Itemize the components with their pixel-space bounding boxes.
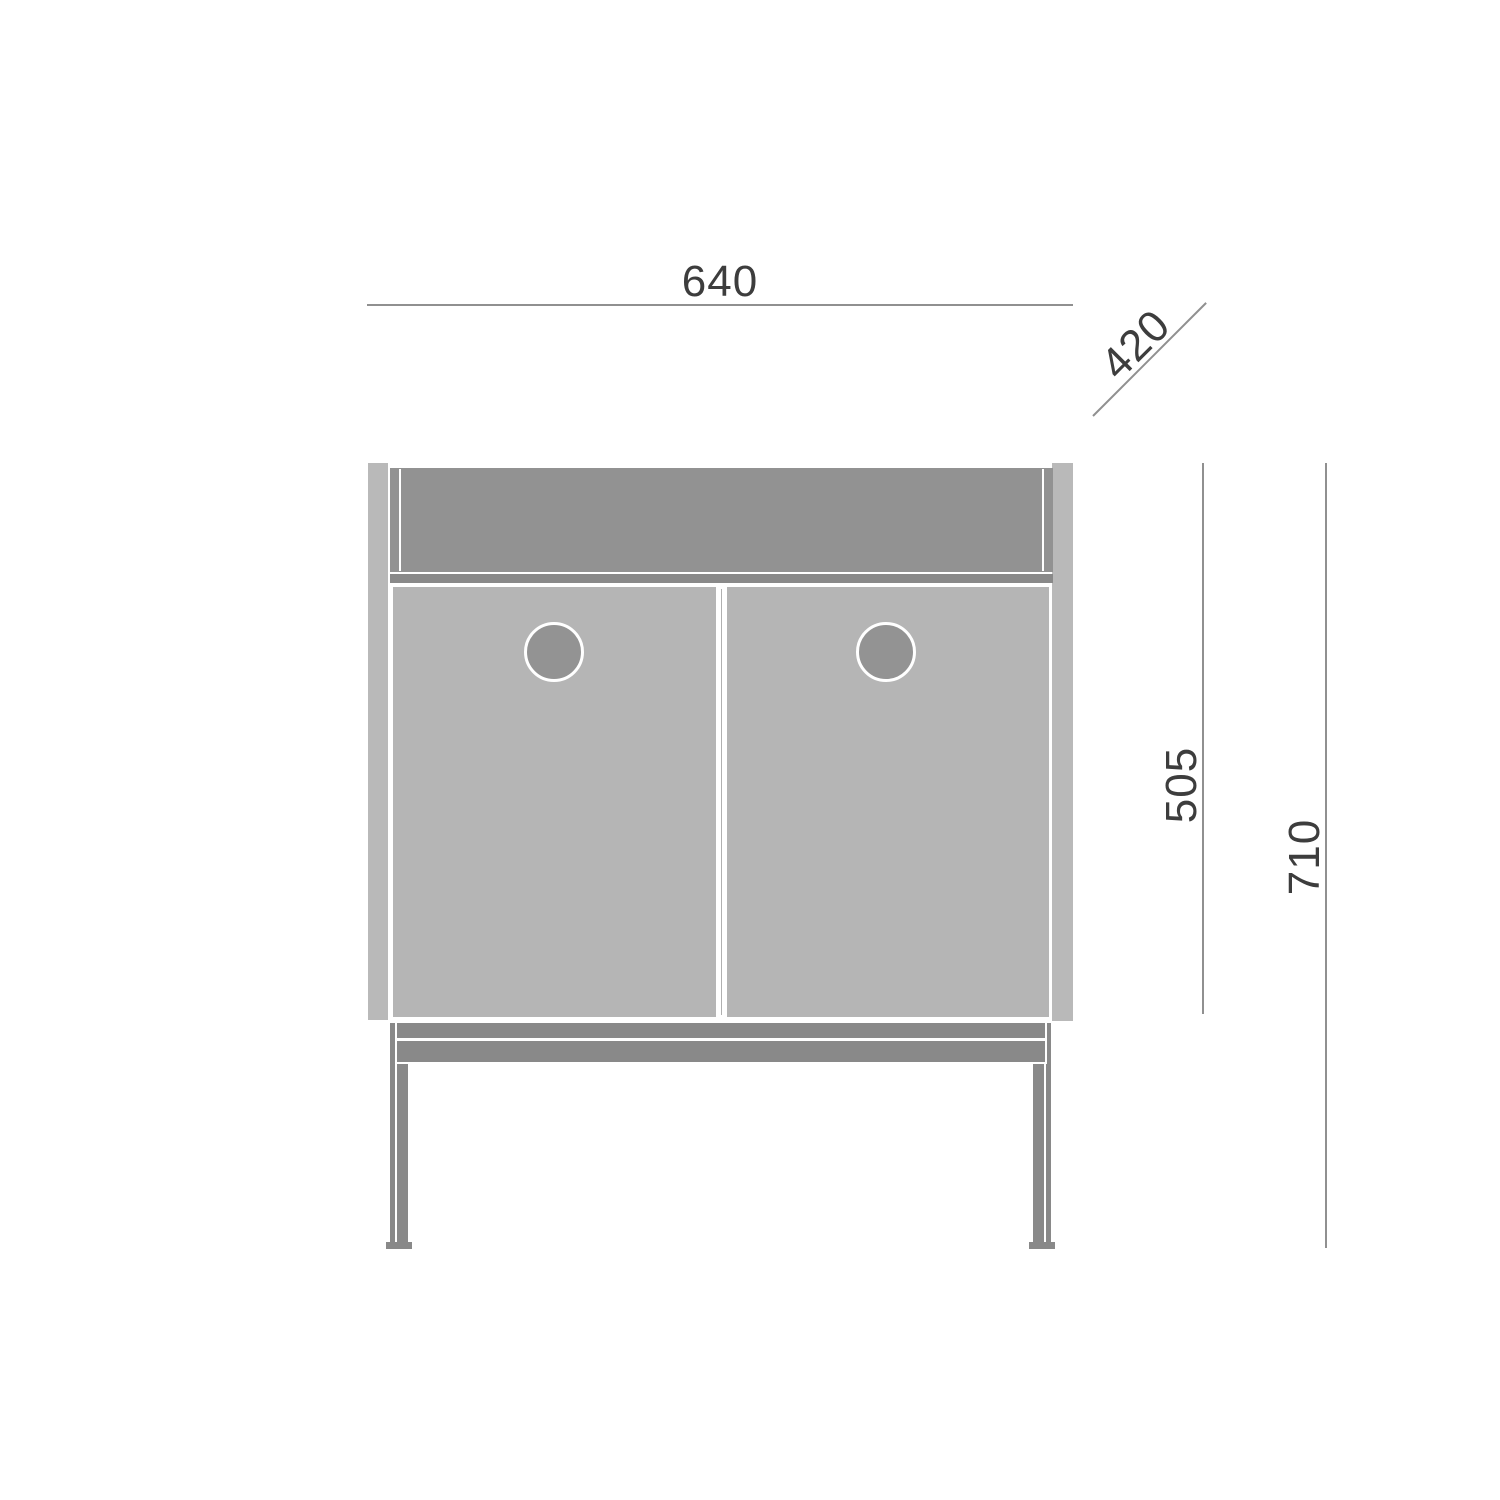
dimension-carcass-height-line bbox=[1202, 463, 1204, 1014]
door-handle-left bbox=[524, 622, 584, 682]
dimension-total-height-label: 710 bbox=[1283, 819, 1327, 895]
dimension-carcass-height-label: 505 bbox=[1160, 747, 1204, 823]
drawer-band-edge-line-right bbox=[1042, 469, 1044, 571]
door-handle-right bbox=[856, 622, 916, 682]
dimension-width-label: 640 bbox=[367, 260, 1073, 304]
cabinet-foot-left bbox=[386, 1242, 412, 1249]
cabinet-side-panel-right bbox=[1052, 463, 1073, 1021]
dimension-depth-label: 420 bbox=[1093, 302, 1178, 387]
door-gap-line bbox=[721, 589, 722, 1015]
apron-rail-top bbox=[397, 1023, 1045, 1038]
cabinet-top-drawer-band bbox=[390, 468, 1053, 572]
dimension-total-height-line bbox=[1325, 463, 1327, 1248]
dimension-width-line bbox=[367, 304, 1073, 306]
drawer-band-edge-line-left bbox=[399, 469, 401, 571]
cabinet-side-panel-left bbox=[368, 463, 388, 1020]
cabinet-divider-rail bbox=[390, 574, 1053, 583]
cabinet-foot-right bbox=[1029, 1242, 1055, 1249]
drawing-canvas: 640 420 505 710 bbox=[0, 0, 1500, 1500]
apron-rail-bottom bbox=[397, 1041, 1045, 1062]
